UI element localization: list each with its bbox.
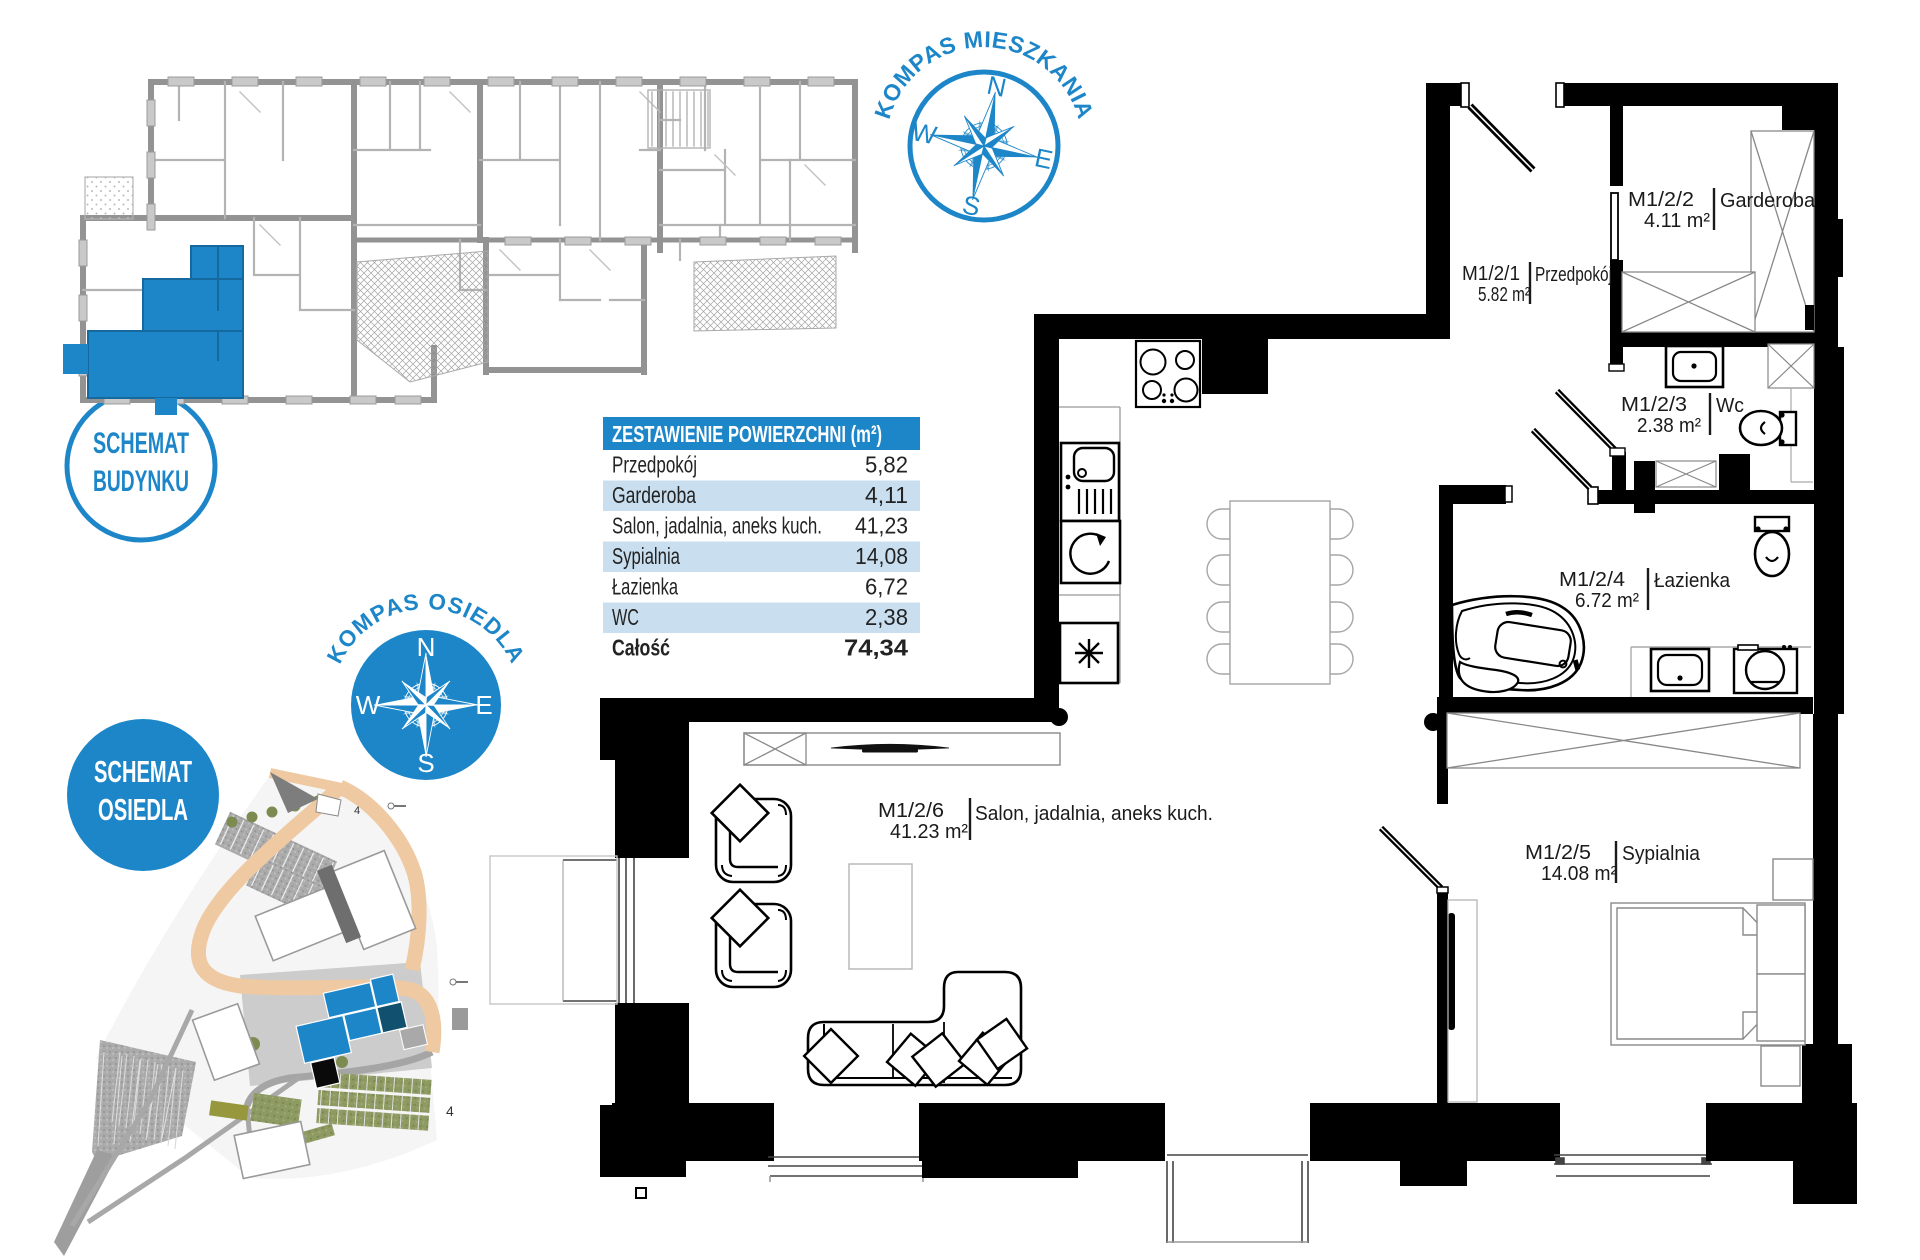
svg-text:4,11: 4,11 — [865, 482, 908, 508]
svg-text:M1/2/4: M1/2/4 — [1559, 569, 1625, 591]
svg-text:E: E — [475, 690, 492, 720]
svg-text:ZESTAWIENIE POWIERZCHNI (m²): ZESTAWIENIE POWIERZCHNI (m²) — [612, 421, 882, 447]
svg-text:Sypialnia: Sypialnia — [612, 543, 680, 569]
svg-text:Całość: Całość — [612, 635, 670, 661]
svg-text:Wc: Wc — [1716, 395, 1744, 417]
svg-text:W: W — [356, 690, 381, 720]
svg-text:SCHEMAT: SCHEMAT — [94, 754, 192, 789]
svg-text:Przedpokój: Przedpokój — [1535, 264, 1612, 286]
svg-text:OSIEDLA: OSIEDLA — [98, 792, 188, 827]
svg-text:Garderoba: Garderoba — [612, 482, 696, 508]
svg-text:M1/2/5: M1/2/5 — [1525, 842, 1591, 864]
svg-text:M1/2/6: M1/2/6 — [878, 800, 944, 822]
svg-text:Salon, jadalnia, aneks kuch.: Salon, jadalnia, aneks kuch. — [975, 803, 1213, 825]
svg-text:Sypialnia: Sypialnia — [1622, 843, 1701, 865]
svg-text:Przedpokój: Przedpokój — [612, 452, 697, 478]
svg-text:Łazienka: Łazienka — [1654, 570, 1731, 592]
svg-text:Łazienka: Łazienka — [612, 574, 678, 600]
svg-text:4.11 m²: 4.11 m² — [1644, 210, 1710, 232]
svg-text:2.38 m²: 2.38 m² — [1637, 415, 1701, 437]
svg-text:N: N — [417, 632, 436, 662]
svg-text:5,82: 5,82 — [865, 452, 908, 478]
svg-text:WC: WC — [612, 604, 639, 630]
svg-text:BUDYNKU: BUDYNKU — [93, 465, 189, 498]
svg-text:5.82 m²: 5.82 m² — [1478, 284, 1530, 306]
svg-text:4: 4 — [446, 1103, 454, 1119]
svg-text:Salon, jadalnia, aneks kuch.: Salon, jadalnia, aneks kuch. — [612, 513, 822, 539]
svg-text:14.08 m²: 14.08 m² — [1541, 863, 1617, 885]
svg-text:4: 4 — [354, 805, 360, 817]
svg-text:74,34: 74,34 — [844, 635, 908, 661]
svg-text:14,08: 14,08 — [855, 543, 908, 569]
svg-text:S: S — [417, 748, 434, 778]
svg-text:41,23: 41,23 — [855, 513, 908, 539]
svg-text:M1/2/3: M1/2/3 — [1621, 394, 1687, 416]
svg-text:6.72 m²: 6.72 m² — [1575, 590, 1639, 612]
svg-text:M1/2/1: M1/2/1 — [1462, 263, 1520, 285]
svg-text:2,38: 2,38 — [865, 604, 908, 630]
svg-text:Garderoba: Garderoba — [1720, 190, 1816, 212]
svg-text:SCHEMAT: SCHEMAT — [93, 427, 189, 460]
svg-text:6,72: 6,72 — [865, 574, 908, 600]
svg-text:41.23 m²: 41.23 m² — [890, 821, 968, 843]
svg-text:M1/2/2: M1/2/2 — [1628, 189, 1694, 211]
